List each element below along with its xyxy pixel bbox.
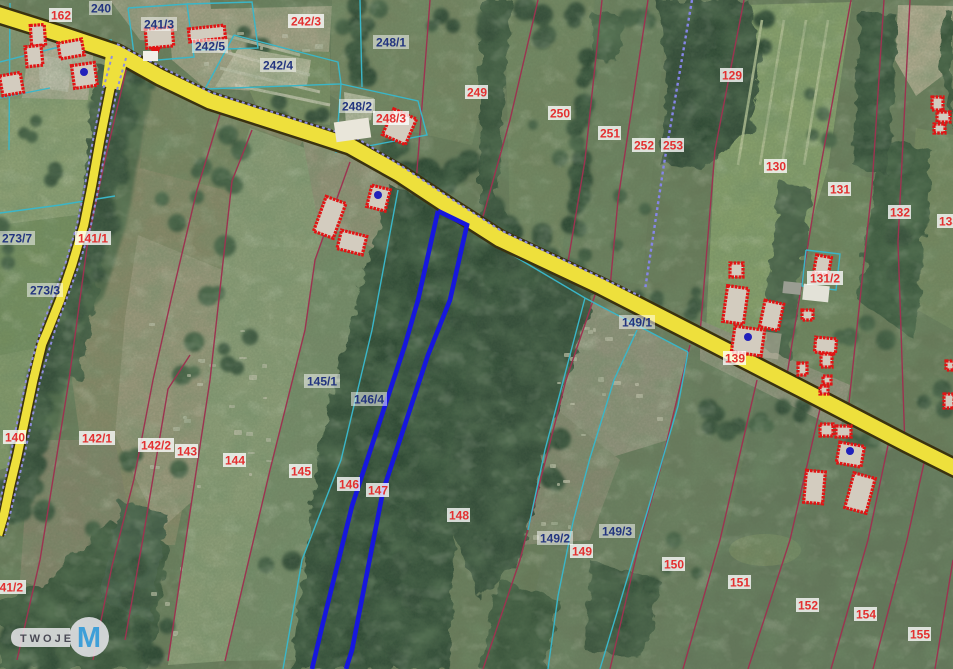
svg-text:242/5: 242/5	[195, 40, 225, 54]
svg-text:129: 129	[722, 69, 742, 83]
svg-text:130: 130	[766, 160, 786, 174]
svg-text:144: 144	[225, 454, 245, 468]
svg-text:242/4: 242/4	[263, 59, 293, 73]
svg-text:149/3: 149/3	[602, 525, 632, 539]
svg-text:131/2: 131/2	[810, 272, 840, 286]
svg-text:149: 149	[572, 545, 592, 559]
svg-text:242/3: 242/3	[291, 15, 321, 29]
svg-text:248/1: 248/1	[376, 36, 406, 50]
svg-text:248/3: 248/3	[376, 112, 406, 126]
svg-text:M: M	[77, 622, 101, 654]
svg-text:162: 162	[51, 9, 71, 23]
svg-text:249: 249	[467, 86, 487, 100]
svg-text:248/2: 248/2	[342, 100, 372, 114]
svg-text:150: 150	[664, 558, 684, 572]
svg-text:140: 140	[5, 431, 25, 445]
svg-text:139: 139	[725, 352, 745, 366]
svg-text:155: 155	[910, 628, 930, 642]
svg-text:152: 152	[798, 599, 818, 613]
svg-text:143: 143	[177, 445, 197, 459]
svg-text:142/2: 142/2	[141, 439, 171, 453]
svg-text:145/1: 145/1	[307, 375, 337, 389]
svg-text:241/3: 241/3	[144, 18, 174, 32]
svg-text:250: 250	[550, 107, 570, 121]
svg-text:252: 252	[634, 139, 654, 153]
svg-text:145: 145	[291, 465, 311, 479]
svg-text:146/4: 146/4	[354, 393, 384, 407]
svg-text:251: 251	[600, 127, 620, 141]
svg-text:151: 151	[730, 576, 750, 590]
svg-text:148: 148	[449, 509, 469, 523]
svg-text:149/1: 149/1	[622, 316, 652, 330]
svg-text:154: 154	[856, 608, 876, 622]
svg-text:TWOJE: TWOJE	[20, 633, 74, 645]
svg-text:149/2: 149/2	[540, 532, 570, 546]
svg-text:133: 133	[939, 215, 953, 229]
svg-text:273/3: 273/3	[30, 284, 60, 298]
svg-text:132: 132	[890, 206, 910, 220]
svg-text:273/7: 273/7	[2, 232, 32, 246]
svg-text:142/1: 142/1	[82, 432, 112, 446]
svg-text:240: 240	[91, 2, 111, 16]
svg-text:141/1: 141/1	[78, 232, 108, 246]
svg-text:146: 146	[339, 478, 359, 492]
svg-text:253: 253	[663, 139, 683, 153]
svg-text:141/2: 141/2	[0, 581, 23, 595]
svg-text:147: 147	[368, 484, 388, 498]
svg-text:131: 131	[830, 183, 850, 197]
